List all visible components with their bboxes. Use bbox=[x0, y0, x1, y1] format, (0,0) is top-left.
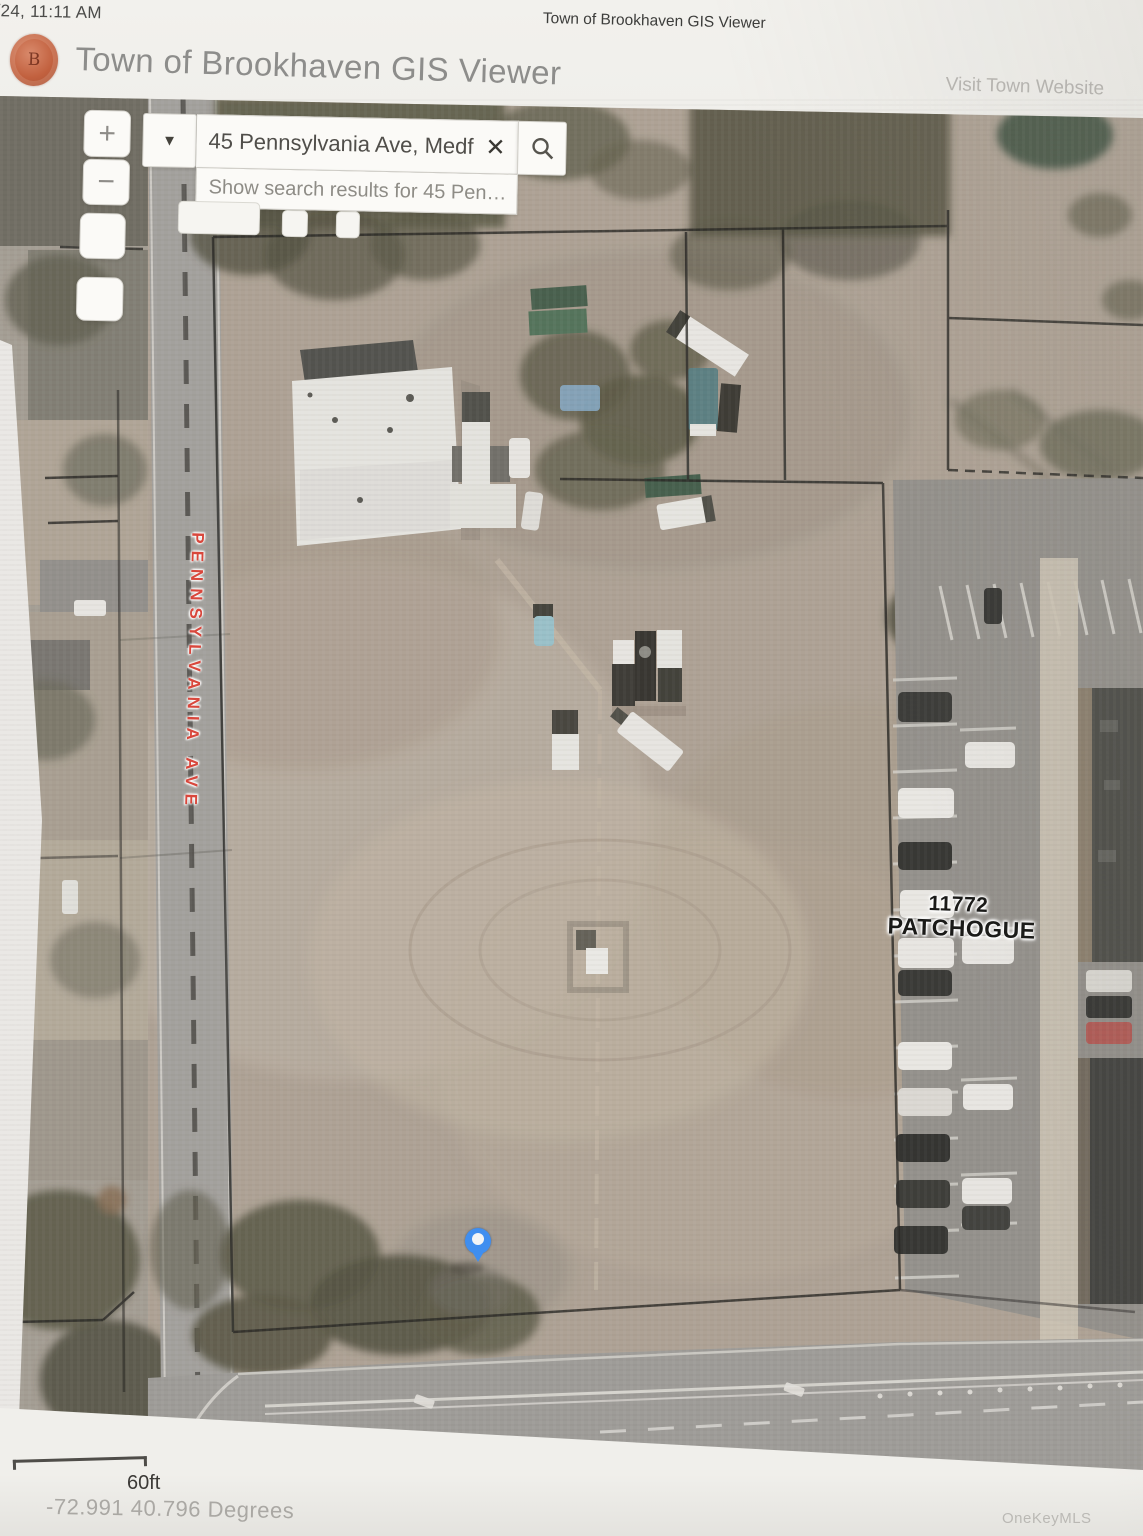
search-input[interactable]: 45 Pennsylvania Ave, Medf ✕ bbox=[196, 114, 519, 175]
print-artifact-block bbox=[282, 210, 309, 238]
mls-watermark: OneKeyMLS bbox=[1002, 1510, 1092, 1527]
printed-page-photo: 5/24, 11:11 AM Town of Brookhaven GIS Vi… bbox=[0, 0, 1143, 1536]
coordinates-readout: -72.991 40.796 Degrees bbox=[46, 1494, 295, 1524]
hamlet-label: PATCHOGUE bbox=[887, 914, 1028, 943]
map-tool-button-1[interactable] bbox=[79, 213, 126, 260]
zoom-out-button[interactable]: − bbox=[82, 159, 130, 206]
location-pin-shadow bbox=[450, 1262, 484, 1274]
scale-label: 60ft bbox=[127, 1472, 160, 1495]
search-source-dropdown[interactable]: ▼ bbox=[142, 113, 197, 168]
place-label-patchogue: 11772 PATCHOGUE bbox=[887, 892, 1029, 943]
search-input-value: 45 Pennsylvania Ave, Medf bbox=[208, 128, 481, 160]
clear-icon[interactable]: ✕ bbox=[481, 132, 510, 162]
plus-icon: + bbox=[98, 116, 116, 150]
search-button[interactable] bbox=[517, 121, 567, 176]
zoom-in-button[interactable]: + bbox=[83, 110, 131, 158]
minus-icon: − bbox=[97, 165, 115, 199]
location-pin-icon[interactable] bbox=[465, 1228, 491, 1254]
search-icon bbox=[529, 135, 556, 162]
print-artifact-block bbox=[336, 211, 361, 238]
map-canvas[interactable]: PENNSYLVANIA AVE 11772 PATCHOGUE bbox=[0, 0, 1143, 1536]
map-tool-button-2[interactable] bbox=[76, 277, 124, 322]
print-artifact-block bbox=[178, 201, 261, 236]
caret-down-icon: ▼ bbox=[162, 132, 177, 149]
